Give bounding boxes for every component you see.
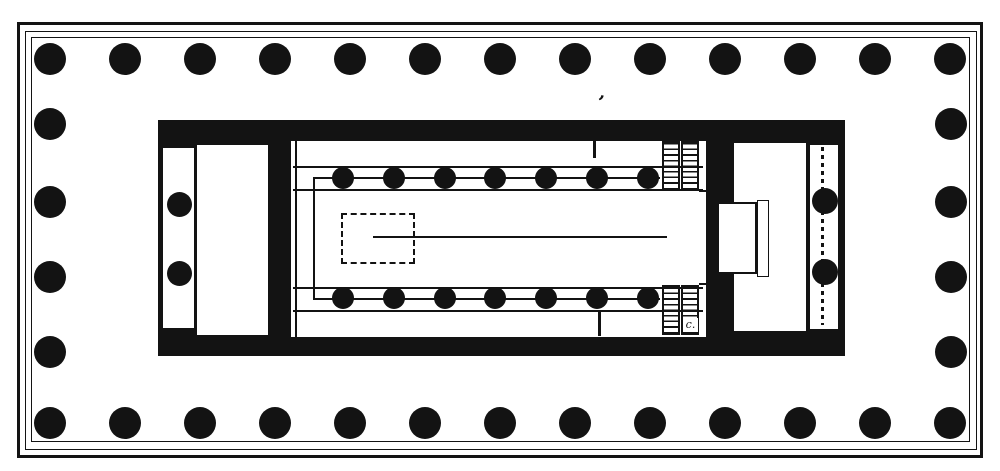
outer-column [184,407,216,439]
outer-column [34,43,66,75]
cella-column [535,287,557,309]
outer-column [709,43,741,75]
cella-column [586,287,608,309]
outer-column [559,407,591,439]
cella-column [484,167,506,189]
west-porch-column [167,192,192,217]
cella-column [535,167,557,189]
east-porch-column [812,188,838,214]
outer-column [935,336,967,368]
outer-column [34,407,66,439]
outer-column [634,407,666,439]
west-porch-column [167,261,192,286]
outer-column [935,186,967,218]
outer-column [559,43,591,75]
outer-column [259,43,291,75]
cella-column [383,287,405,309]
temple-plan-figure: c. ’ [0,0,1000,471]
outer-column [334,407,366,439]
outer-column [934,43,966,75]
cella-column [637,167,659,189]
outer-column [409,43,441,75]
outer-column [784,407,816,439]
outer-column [709,407,741,439]
cella-column [484,287,506,309]
outer-column [109,407,141,439]
outer-column [484,407,516,439]
east-porch-column [812,259,838,285]
outer-column [334,43,366,75]
outer-column [34,336,66,368]
outer-column [859,43,891,75]
outer-column [34,108,66,140]
outer-column [109,43,141,75]
outer-column [484,43,516,75]
outer-column [184,43,216,75]
outer-column [934,407,966,439]
cella-column [332,167,354,189]
cella-column [586,167,608,189]
outer-column [935,261,967,293]
outer-column [34,186,66,218]
colonnade-dots-layer [0,0,1000,471]
outer-column [409,407,441,439]
outer-column [634,43,666,75]
outer-column [34,261,66,293]
cella-column [332,287,354,309]
outer-column [259,407,291,439]
outer-column [784,43,816,75]
outer-column [935,108,967,140]
cella-column [637,287,659,309]
outer-column [859,407,891,439]
cella-column [434,287,456,309]
cella-column [434,167,456,189]
cella-column [383,167,405,189]
